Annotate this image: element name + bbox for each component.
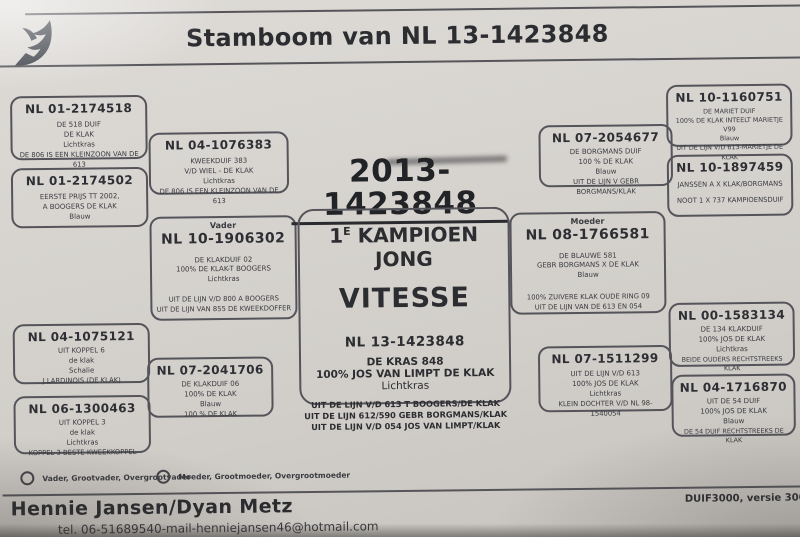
note-line: DE 54 DUIF RECHTSTREEKS DE KLAK [677,426,791,446]
detail-line: Schalie [58,366,105,376]
mother-legend-label: Moeder, Grootmoeder, Overgrootmoeder [178,471,350,482]
pigeon-details: UIT KOPPEL 3 de klak Lichtkras [59,419,106,449]
subject-ring-number: NL 13-1423848 [301,333,509,351]
detail-line: Lichtkras [57,140,101,150]
pigeon-details: DE KLAKDUIF 02 100% DE KLAK-T BOOGERS Li… [176,255,271,285]
detail-line: de klak [59,429,106,439]
pigeon-notes: UIT DE LIJN V GEBR BORGMANS/KLAK [544,177,668,200]
subject-color: Lichtkras [301,379,509,393]
detail-line: DE KLAK [57,131,101,141]
pigeon-details: DE 134 KLAKDUIF 100% JOS DE KLAK Lichtkr… [698,325,765,355]
note-line: UIT DE LIJN VAN DE 613 EN 054 [527,302,650,313]
champion-title: 1E KAMPIOEN JONG [299,222,508,272]
pigeon-details: DE BLAUWE 581 GEBR BORGMANS X DE KLAK Bl… [537,251,639,282]
detail-line: Blauw [40,212,120,223]
subject-notes: UIT DE LIJN V/D 613 T BOOGERS/DE KLAK UI… [301,398,509,434]
pigeon-notes: DE 806 IS EEN KLEINZOON VAN DE 613 [154,186,284,209]
pigeon-notes: 100% ZUIVERE KLAK OUDE RING 09 UIT DE LI… [527,292,650,315]
pigeon-details: UIT KOPPEL 6 de klak Schalie [58,347,105,377]
ring-number: NL 06-1300463 [28,401,135,417]
owner-name: Hennie Jansen/Dyan Metz [11,495,293,520]
pigeon-details: KWEEKDUIF 383 V/D WIEL - DE KLAK Lichtkr… [184,157,253,187]
pedigree-box-mother: Moeder NL 08-1766581 DE BLAUWE 581 GEBR … [509,211,666,315]
detail-line: 100% DE KLAK [181,390,239,400]
ring-number: NL 10-1897459 [676,160,783,176]
detail-line: 100% JOS DE KLAK [700,407,767,418]
scan-content: Stamboom van NL 13-1423848 NL 01-2174518… [0,0,800,537]
pigeon-details: DE 518 DUIF DE KLAK Lichtkras [57,121,102,151]
father-legend-circle-icon [20,471,34,485]
pedigree-box-great-grandfather-2: NL 04-1075121 UIT KOPPEL 6 de klak Schal… [13,323,151,385]
pedigree-box-great-grandmother-1: NL 01-2174502 EERSTE PRIJS TT 2002, A BO… [11,167,149,229]
pedigree-box-father: Vader NL 10-1906302 DE KLAKDUIF 02 100% … [149,215,297,321]
note-line: 100 % DE KLAK [184,410,237,420]
pedigree-box-great-grandmother-3: NL 10-1897459 JANSSEN A X KLAK/BORGMANS … [667,154,794,217]
pigeon-notes: KLEIN DOCHTER V/D NL 98-1540054 [544,399,668,422]
pedigree-box-great-grandmother-2: NL 06-1300463 UIT KOPPEL 3 de klak Licht… [13,395,151,455]
pigeon-notes: 100 % DE KLAK [184,410,237,422]
pigeon-details: UIT DE 54 DUIF 100% JOS DE KLAK Blauw [700,397,767,427]
detail-line: Lichtkras [59,438,106,448]
pigeon-notes: UIT DE LIJN V/D 800 A BOOGERS UIT DE LIJ… [157,294,292,317]
note-line: KOPPEL 3 BESTE KWEEKKOPPEL [29,448,137,459]
mother-legend-circle-icon [156,470,170,484]
detail-line: Blauw [537,270,639,281]
ring-number: NL 01-2174518 [25,101,132,117]
contact-info: tel. 06-51689540-mail-henniejansen46@hot… [58,519,379,537]
detail-line: DE KLAKDUIF 06 [181,380,239,390]
software-version: DUIF3000, versie 300 [685,492,800,504]
note-line: KLEIN DOCHTER V/D NL 98-1540054 [544,399,668,420]
pedigree-box-grandmother-2: NL 07-1511299 UIT DE LIJN V/D 613 100% J… [538,345,673,413]
ring-number: NL 04-1716870 [680,380,787,396]
detail-line: 100% JOS DE KLAK [699,335,766,346]
pigeon-notes: J LARDINOIS (DE KLAK) [43,376,121,389]
ring-number: NL 08-1766581 [525,226,649,244]
ring-number: NL 07-2041706 [156,363,263,379]
parent-role-label: Vader [210,222,236,231]
note-line: UIT DE LIJN V/D 054 JOS VAN LIMPT/KLAK [302,420,510,433]
detail-line: V/D WIEL - DE KLAK [184,167,253,178]
detail-line: DE 518 DUIF [57,121,101,131]
page-title: Stamboom van NL 13-1423848 [0,17,797,54]
note-line: UIT DE LIJN VAN 855 DE KWEEKDOFFER [157,304,291,315]
pedigree-box-great-grandmother-4: NL 04-1716870 UIT DE 54 DUIF 100% JOS DE… [671,374,796,437]
detail-line: 100% DE KLAK-T BOOGERS [176,265,271,276]
note-line: NOOT 1 X 737 KAMPIOENSDUIF [677,196,784,207]
detail-line: 100% JOS DE KLAK [571,379,640,390]
header-top-rule [25,4,800,15]
pedigree-sheet: Stamboom van NL 13-1423848 NL 01-2174518… [0,0,800,537]
pedigree-box-grandfather-2: NL 07-2054677 DE BORGMANS DUIF 100 % DE … [538,124,673,188]
pedigree-box-great-grandfather-4: NL 00-1583134 DE 134 KLAKDUIF 100% JOS D… [668,302,795,367]
ring-number: NL 07-2054677 [552,130,659,146]
note-line: J LARDINOIS (DE KLAK) [43,376,121,387]
pedigree-box-great-grandfather-3: NL 10-1160751 DE MARIET DUIF 100% DE KLA… [666,84,793,147]
pigeon-notes: DE 54 DUIF RECHTSTREEKS DE KLAK [677,426,791,448]
pigeon-details: DE KLAKDUIF 06 100% DE KLAK Blauw [181,380,239,410]
note-line: DE 806 IS EEN KLEINZOON VAN DE 613 [154,186,284,207]
pedigree-box-great-grandfather-1: NL 01-2174518 DE 518 DUIF DE KLAK Lichtk… [10,95,148,161]
detail-line: UIT KOPPEL 3 [59,419,106,429]
detail-line: 100% DE KLAK INTEELT MARIETJE V99 [671,116,787,135]
discipline-title: VITESSE [300,282,508,315]
pigeon-details: DE BORGMANS DUIF 100 % DE KLAK Blauw [570,148,642,178]
note-line: JANSSEN A X KLAK/BORGMANS [677,180,784,191]
subject-box: 1E KAMPIOEN JONG VITESSE NL 13-1423848 D… [297,207,511,405]
parent-role-label: Moeder [570,218,604,227]
ring-number: NL 07-1511299 [551,351,658,367]
pedigree-box-grandfather-1: NL 04-1076383 KWEEKDUIF 383 V/D WIEL - D… [148,131,289,195]
ring-number: NL 04-1075121 [28,329,135,345]
footer-rule [3,485,800,496]
pigeon-details: UIT DE LIJN V/D 613 100% JOS DE KLAK Lic… [570,370,640,400]
detail-line: Lichtkras [176,275,271,286]
note-line: BEIDE OUDERS RECHTSTREEKS KLAK [674,354,790,374]
ring-number: NL 00-1583134 [678,308,785,324]
pigeon-details: DE MARIET DUIF 100% DE KLAK INTEELT MARI… [671,107,787,144]
detail-line: 100 % DE KLAK [570,157,642,168]
header-bottom-rule [0,56,800,67]
detail-line: Blauw [182,400,240,410]
pigeon-details: EERSTE PRIJS TT 2002, A BOOGERS DE KLAK … [40,193,120,223]
detail-line: de klak [58,357,105,367]
ring-number: NL 04-1076383 [165,137,272,153]
detail-line: UIT KOPPEL 6 [58,347,105,357]
pigeon-notes: KOPPEL 3 BESTE KWEEKKOPPEL [29,448,137,461]
ring-number: NL 10-1160751 [675,90,782,106]
note-line: UIT DE LIJN V GEBR BORGMANS/KLAK [544,177,668,198]
detail-line: GEBR BORGMANS X DE KLAK [537,261,639,272]
ring-number: NL 01-2174502 [26,173,133,189]
pigeon-notes: JANSSEN A X KLAK/BORGMANS NOOT 1 X 737 K… [677,174,784,215]
ring-number: NL 10-1906302 [161,230,285,248]
pedigree-box-grandmother-1: NL 07-2041706 DE KLAKDUIF 06 100% DE KLA… [147,356,274,417]
detail-line: A BOOGERS DE KLAK [40,202,120,213]
